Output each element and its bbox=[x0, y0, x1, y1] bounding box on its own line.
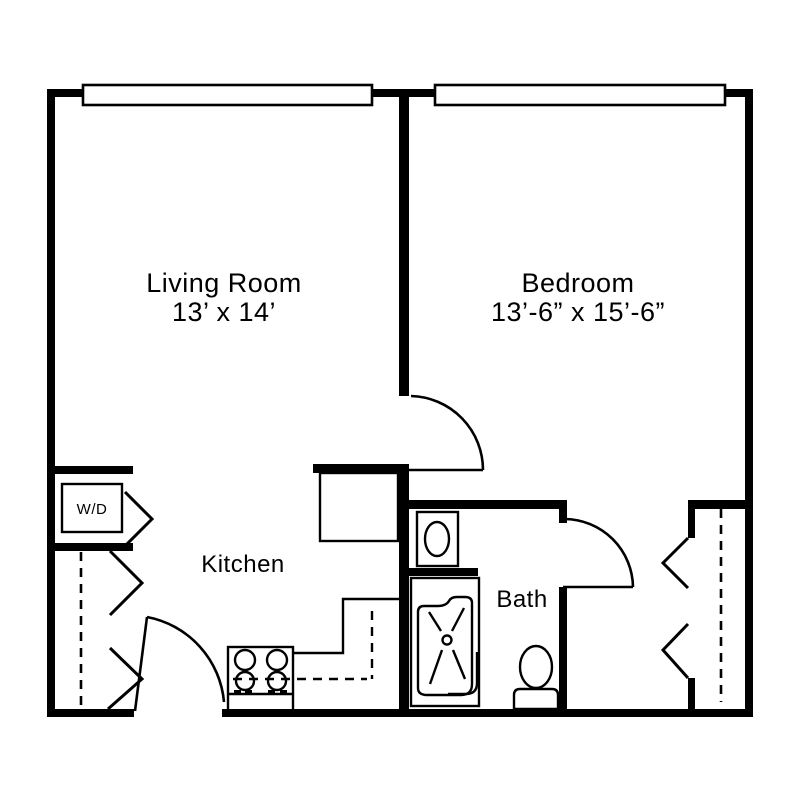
living-room-dimensions: 13’ x 14’ bbox=[172, 297, 276, 327]
stove-burner-tr bbox=[267, 650, 287, 670]
floor-plan: Living Room 13’ x 14’ Bedroom 13’-6” x 1… bbox=[0, 0, 800, 800]
stove-knob-1 bbox=[234, 690, 241, 695]
bedroom-label: Bedroom bbox=[521, 268, 634, 298]
kitchen-counter bbox=[293, 599, 400, 653]
wall-bedroom-closet-jamb-bottom bbox=[688, 678, 695, 711]
wall-bedroom-closet-jamb-top bbox=[688, 509, 695, 538]
bathroom-sink bbox=[417, 512, 458, 566]
labels: Living Room 13’ x 14’ Bedroom 13’-6” x 1… bbox=[77, 268, 665, 613]
living-room-label: Living Room bbox=[146, 268, 302, 298]
window-bedroom bbox=[435, 85, 725, 105]
kitchen-fixtures bbox=[62, 473, 400, 711]
entry-door-swing-arc bbox=[147, 617, 224, 702]
kitchen-label: Kitchen bbox=[201, 551, 285, 578]
bath-door bbox=[563, 519, 633, 587]
tub-floor-x3 bbox=[430, 650, 442, 684]
stove-burner-bl bbox=[236, 672, 254, 690]
wall-bedroom-closet-top bbox=[688, 500, 748, 509]
stove-burner-tl bbox=[235, 650, 255, 670]
wall-bath-top bbox=[399, 500, 567, 509]
bath-label: Bath bbox=[496, 586, 547, 613]
wall-kitchen-corner bbox=[313, 464, 409, 473]
wall-bath-half bbox=[399, 568, 478, 576]
wall-lr-bedroom-divider bbox=[399, 89, 409, 396]
wall-bath-door-jamb bbox=[559, 509, 567, 523]
entry-closet-bifold-upper bbox=[110, 551, 142, 615]
bedroom-closet-bifold-upper bbox=[663, 538, 688, 588]
wall-left bbox=[47, 89, 55, 717]
window-living-room bbox=[83, 85, 372, 105]
stove-knob-4 bbox=[280, 690, 287, 695]
wall-bottom-right bbox=[222, 709, 753, 717]
floor-plan-drawing: Living Room 13’ x 14’ Bedroom 13’-6” x 1… bbox=[0, 0, 800, 800]
stove-knob-2 bbox=[245, 690, 252, 695]
tub-drain bbox=[443, 636, 452, 645]
stove-knob-3 bbox=[268, 690, 275, 695]
bedroom-closet-bifold-lower bbox=[663, 624, 688, 678]
wall-bath-right bbox=[559, 587, 567, 711]
bathtub-shower bbox=[411, 578, 479, 706]
wall-bottom-left bbox=[47, 709, 134, 717]
wall-wd-bottom bbox=[47, 543, 133, 551]
entry-door-leaf bbox=[135, 617, 147, 711]
bedroom-door-swing-arc bbox=[411, 396, 483, 470]
wall-right bbox=[745, 89, 753, 717]
sink-basin bbox=[425, 522, 449, 556]
tub-floor-x1 bbox=[429, 612, 441, 631]
refrigerator bbox=[320, 473, 398, 541]
entry-door bbox=[135, 617, 224, 711]
bath-door-swing-arc bbox=[565, 519, 633, 587]
toilet-tank bbox=[514, 689, 558, 709]
toilet-bowl bbox=[520, 646, 552, 688]
sink-counter bbox=[417, 512, 458, 566]
washer-dryer-label: W/D bbox=[77, 501, 108, 518]
wd-closet-bifold-door bbox=[125, 492, 152, 546]
tub-floor-x2 bbox=[452, 608, 464, 631]
tub-floor-x4 bbox=[453, 650, 465, 679]
walls bbox=[47, 89, 753, 717]
stove-burner-br bbox=[268, 672, 286, 690]
tub-pan bbox=[418, 597, 472, 695]
bedroom-door bbox=[409, 396, 483, 470]
wall-wd-top bbox=[47, 466, 133, 474]
bedroom-dimensions: 13’-6” x 15’-6” bbox=[491, 297, 665, 327]
toilet bbox=[514, 646, 558, 709]
